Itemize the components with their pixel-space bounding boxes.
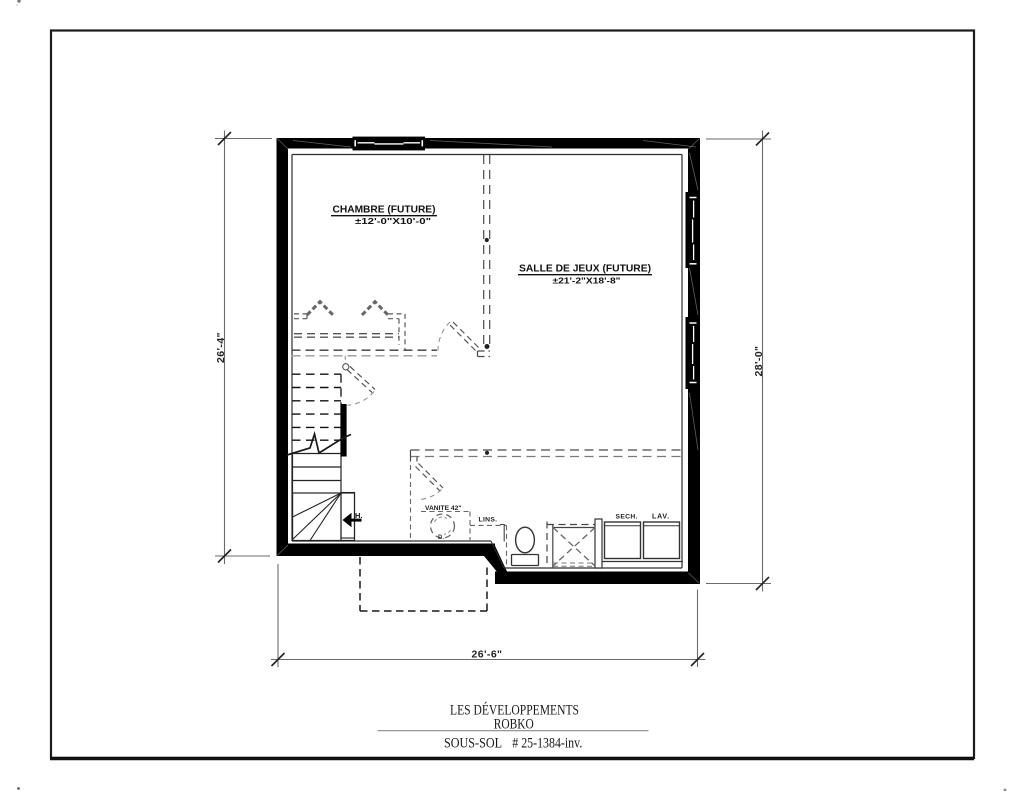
svg-text:±12'-0"X10'-0": ±12'-0"X10'-0" bbox=[355, 216, 431, 226]
svg-text:26'-4": 26'-4" bbox=[215, 332, 227, 363]
svg-text:±21'-2"X18'-8": ±21'-2"X18'-8" bbox=[553, 276, 621, 286]
svg-text:# 25-1384-inv.: # 25-1384-inv. bbox=[512, 736, 582, 752]
svg-text:CHAMBRE (FUTURE): CHAMBRE (FUTURE) bbox=[333, 205, 436, 216]
svg-text:SALLE DE JEUX (FUTURE): SALLE DE JEUX (FUTURE) bbox=[519, 264, 651, 275]
svg-text:LAV.: LAV. bbox=[652, 514, 670, 521]
svg-text:ROBKO: ROBKO bbox=[494, 716, 534, 732]
svg-text:SECH.: SECH. bbox=[616, 514, 638, 521]
svg-text:SOUS-SOL: SOUS-SOL bbox=[444, 736, 502, 752]
svg-text:26'-6": 26'-6" bbox=[472, 649, 503, 661]
svg-text:H.: H. bbox=[355, 511, 363, 520]
svg-text:LINS.: LINS. bbox=[479, 517, 498, 524]
svg-text:D.: D. bbox=[438, 535, 444, 541]
svg-text:28'-0": 28'-0" bbox=[753, 346, 765, 377]
